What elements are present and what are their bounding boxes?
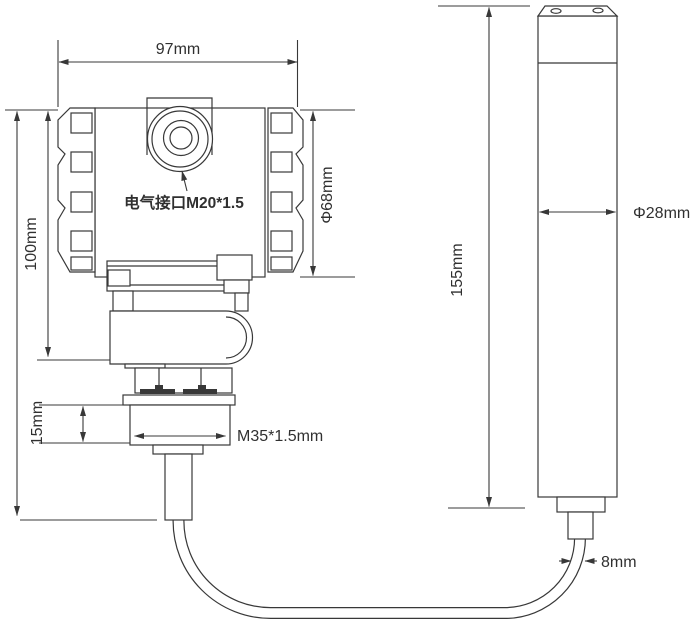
electrical-entry-port xyxy=(148,107,213,172)
technical-drawing: 97mm 100mm Φ68mm 电气接口M20*1.5 15mm M35*1.… xyxy=(0,0,700,629)
cable-diameter-label: 8mm xyxy=(601,554,637,571)
probe-length-label: 155mm xyxy=(449,243,466,296)
cable-stem xyxy=(165,454,192,520)
housing-width-label: 97mm xyxy=(156,41,200,58)
probe-cable-gland xyxy=(568,512,593,539)
probe-diameter-label: Φ28mm xyxy=(633,205,690,222)
mounting-flange xyxy=(123,395,235,405)
gland-height-label: 15mm xyxy=(29,401,46,445)
housing-diameter-label: Φ68mm xyxy=(319,166,336,223)
terminal-bracket xyxy=(107,255,252,311)
dim-probe-length: 155mm xyxy=(438,6,530,508)
right-housing-cap xyxy=(268,108,303,272)
left-housing-cap xyxy=(58,108,95,272)
cable-outline xyxy=(179,520,581,613)
dim-housing-width: 97mm xyxy=(58,40,298,107)
dimension-drawing-canvas: 97mm 100mm Φ68mm 电气接口M20*1.5 15mm M35*1.… xyxy=(0,0,700,629)
housing-height-label: 100mm xyxy=(23,217,40,270)
cable-collar xyxy=(153,445,203,454)
probe-assembly xyxy=(538,6,617,539)
thread-spec-label: M35*1.5mm xyxy=(237,428,323,445)
thread-nut xyxy=(130,405,230,445)
electrical-port-label: 电气接口M20*1.5 xyxy=(124,193,244,212)
process-connection-body xyxy=(110,311,253,368)
connection-cable xyxy=(179,520,581,613)
hex-fitting xyxy=(135,368,232,394)
dim-housing-diameter: Φ68mm xyxy=(300,110,355,277)
dim-gland-height: 15mm xyxy=(29,401,130,445)
probe-top-face xyxy=(538,6,617,16)
transmitter-assembly xyxy=(58,98,303,520)
probe-body xyxy=(538,16,617,497)
cable-core xyxy=(179,520,581,613)
probe-bottom-step xyxy=(557,497,605,512)
terminal-block xyxy=(217,255,252,280)
